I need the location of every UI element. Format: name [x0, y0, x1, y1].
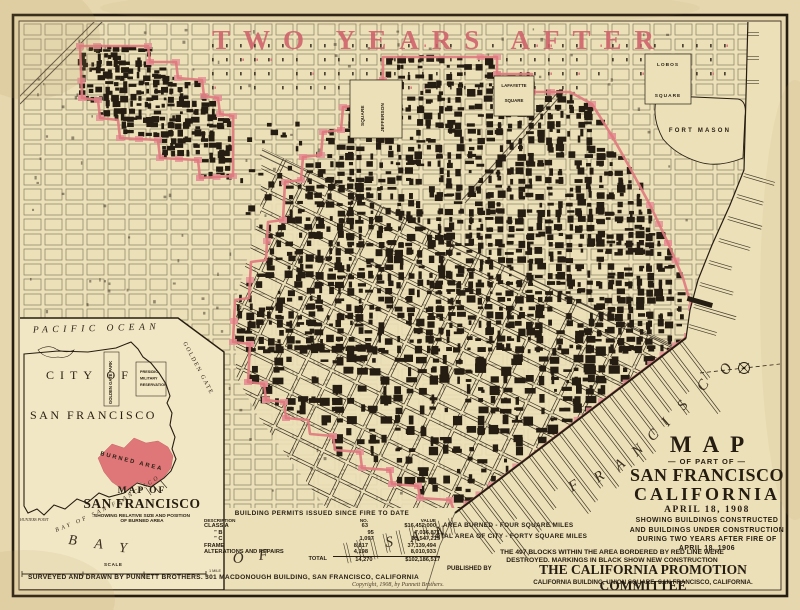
jefferson-square-label-2: SQUARE — [360, 105, 366, 126]
title-city: SAN FRANCISCO — [598, 466, 800, 485]
jefferson-square-block — [350, 80, 402, 138]
title-map: MAP — [598, 433, 800, 456]
title-state: CALIFORNIA — [598, 485, 800, 504]
title-desc-1: SHOWING BUILDINGS CONSTRUCTED — [598, 517, 800, 524]
fort-mason-label: FORT MASON — [669, 128, 731, 134]
publisher-name: THE CALIFORNIA PROMOTION COMMITTEE — [498, 562, 788, 594]
lobos-square-label-1: LOBOS — [657, 62, 679, 68]
scale-label: SCALE — [104, 563, 123, 568]
lobos-square-label-2: SQUARE — [655, 93, 682, 99]
scale-mile-label: 1 MILE — [209, 569, 221, 573]
inset-san-francisco-label: SAN FRANCISCO — [30, 409, 157, 422]
inset-caption-sub-1: SHOWING RELATIVE SIZE AND POSITION — [80, 514, 204, 519]
publisher-address: CALIFORNIA BUILDING, UNION SQUARE. SAN F… — [504, 579, 782, 586]
legend-note-1: THE 497 BLOCKS WITHIN THE AREA BORDERED … — [444, 549, 780, 556]
map-page: OFSANFRANCISCOBAY LOBOS SQUARE LAFAYETTE… — [0, 0, 800, 610]
jefferson-square-label-1: JEFFERSON — [380, 103, 386, 132]
permits-table-title: BUILDING PERMITS ISSUED SINCE FIRE TO DA… — [204, 510, 440, 517]
map-title-block: MAP — OF PART OF — SAN FRANCISCO CALIFOR… — [598, 433, 800, 552]
lafayette-square-block — [494, 76, 534, 116]
inset-city-of-label: CITY OF — [46, 369, 134, 382]
title-desc-2: AND BUILDINGS UNDER CONSTRUCTION — [598, 527, 800, 534]
total-area-stat: TOTAL AREA OF CITY - FORTY SQUARE MILES — [431, 534, 587, 541]
title-desc-3: DURING TWO YEARS AFTER FIRE OF — [598, 536, 800, 543]
bay-letter: A — [93, 537, 104, 553]
permits-total-row: TOTAL 14,270 $102,186,517 — [204, 556, 440, 564]
surveyed-credit: SURVEYED AND DRAWN BY PUNNETT BROTHERS. … — [28, 575, 419, 582]
presidio-label-2: MILITARY — [140, 377, 158, 381]
page-title-banner: TWO YEARS AFTER — [212, 26, 667, 54]
lafayette-square-label-2: SQUARE — [505, 98, 524, 103]
title-date: APRIL 18, 1908 — [598, 505, 800, 515]
inset-caption-map-of: MAP OF — [80, 486, 204, 496]
inset-caption-city: SAN FRANCISCO — [80, 496, 204, 512]
total-value: $102,186,517 — [373, 556, 440, 564]
copyright-credit: Copyright, 1908, by Punnett Brothers. — [352, 582, 444, 588]
hunters-point-label: HUNTERS POINT — [20, 518, 49, 522]
total-no: 14,270 — [333, 556, 373, 564]
presidio-label-1: PRESIDIO — [140, 370, 158, 374]
total-label: TOTAL — [204, 556, 333, 564]
published-by-label: PUBLISHED BY — [447, 566, 492, 572]
inset-caption-sub-2: OF BURNED AREA — [80, 519, 204, 524]
lafayette-square-label-1: LAFAYETTE — [501, 83, 526, 88]
presidio-label-3: RESERVATION — [140, 383, 167, 387]
area-burned-stat: AREA BURNED - FOUR SQUARE MILES — [443, 523, 574, 530]
inset-caption: MAP OF SAN FRANCISCO SHOWING RELATIVE SI… — [80, 486, 204, 524]
building-permits-table: BUILDING PERMITS ISSUED SINCE FIRE TO DA… — [204, 510, 440, 563]
